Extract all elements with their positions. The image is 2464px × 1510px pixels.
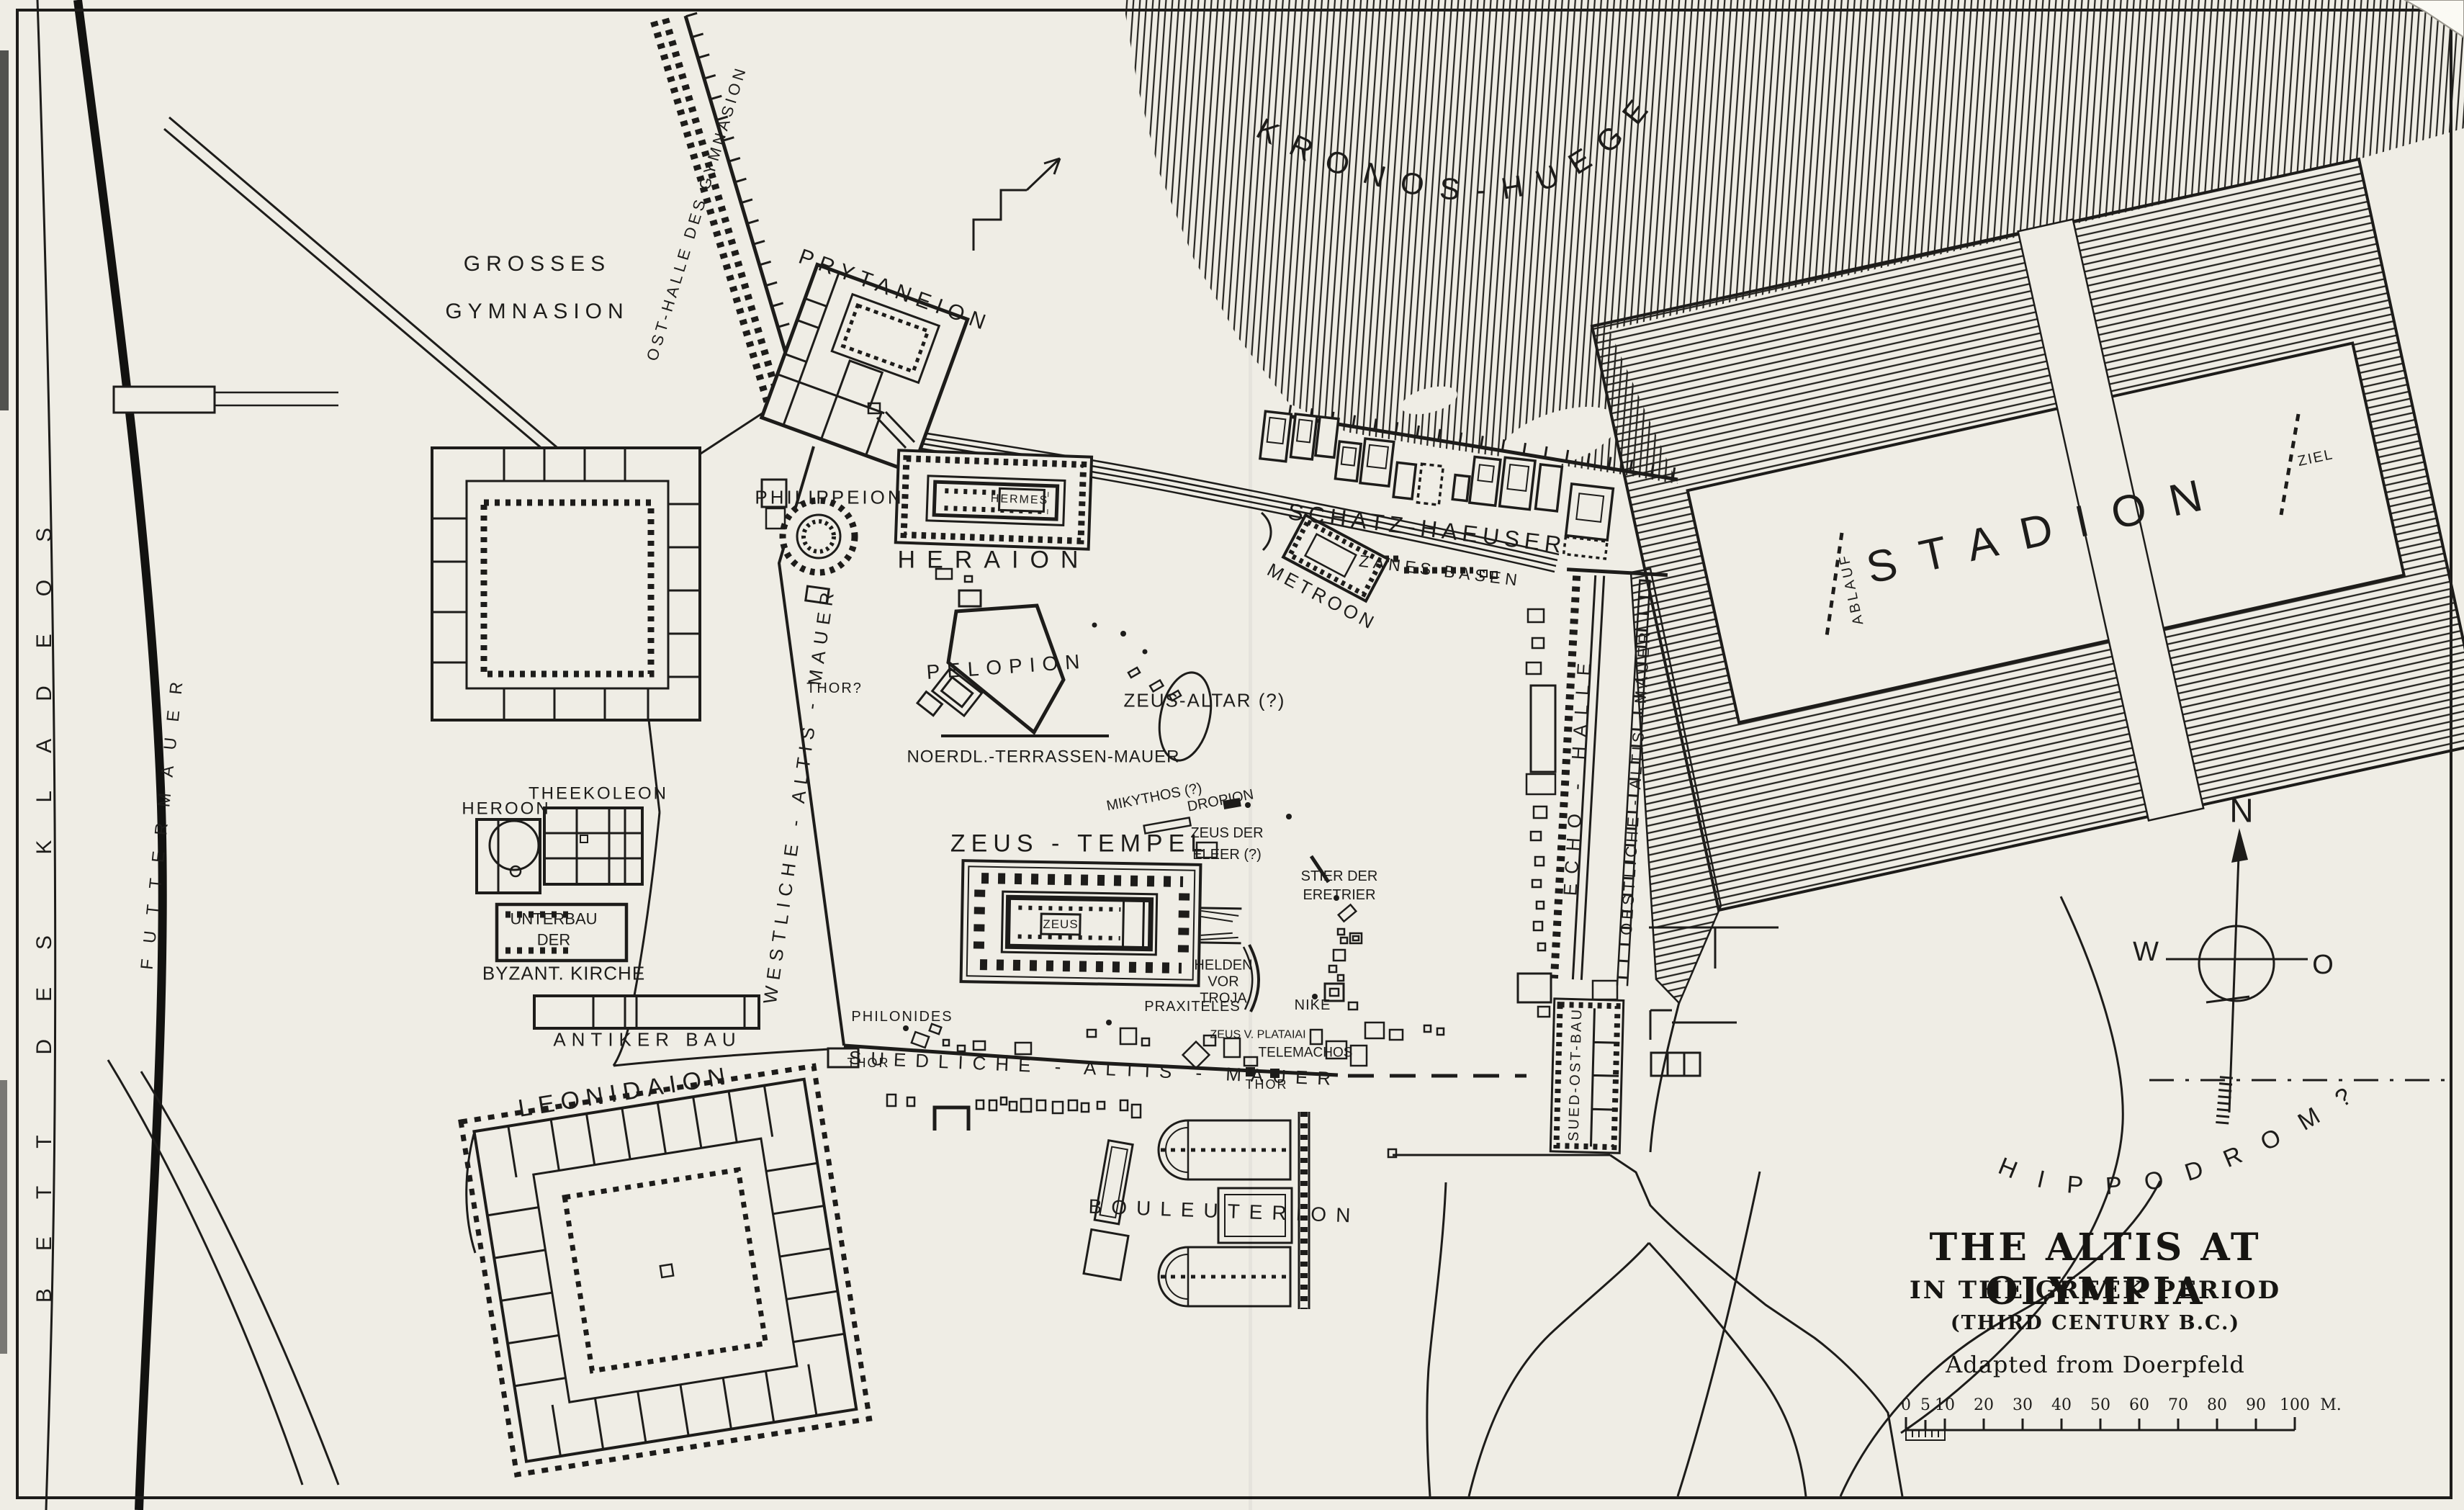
label-zeus-statue: ZEUS (1043, 917, 1078, 932)
scale-tick-0: 0 (1901, 1396, 1911, 1415)
label-heraion: HERAION (898, 546, 1090, 575)
scale-tick-40: 40 (2051, 1396, 2072, 1415)
scale-tick-10: 10 (1935, 1396, 1955, 1415)
label-telemachos: TELEMACHOS (1259, 1046, 1353, 1062)
scale-tick-100: 100 (2280, 1396, 2310, 1415)
scale-tick-20: 20 (1974, 1396, 1994, 1415)
label-grosses-gymnasion: GROSSES GYMNASION (445, 241, 629, 336)
scale-tick-5: 5 (1920, 1396, 1930, 1415)
map-subtitle-2: (THIRD CENTURY B.C.) (1872, 1312, 2319, 1334)
label-compass-o: O (2312, 949, 2334, 982)
label-zeus-v-plataiai: ZEUS V. PLATAIAI (1210, 1028, 1305, 1041)
label-bouleuterion: BOULEUTERION (1088, 1195, 1360, 1228)
label-zeus-der-eleer: ZEUS DER ELEER (?) (1190, 822, 1263, 866)
label-sued-ost-bau: SUED-OST-BAU (1565, 1007, 1586, 1142)
label-zeus-tempel: ZEUS - TEMPEL (950, 830, 1210, 859)
label-prytaneion: PRYTANEION (795, 244, 995, 338)
label-compass-n: N (2229, 791, 2253, 830)
map-credit: Adapted from Doerpfeld (1872, 1351, 2319, 1378)
scale-tick-60: 60 (2129, 1396, 2149, 1415)
olympia-altis-map: K R O N O S - H U E G E L H I P P O D R … (0, 0, 2464, 1510)
scale-unit: M. (2320, 1396, 2342, 1415)
scale-tick-70: 70 (2168, 1396, 2188, 1415)
label-antiker-bau: ANTIKER BAU (553, 1028, 741, 1051)
label-ziel: ZIEL (2296, 446, 2335, 470)
label-thor-west: THOR? (806, 680, 863, 697)
label-futtermauer: FUTTERMAUER (138, 665, 190, 971)
label-noerdl-terrassen-mauer: NOERDL.-TERRASSEN-MAUER (907, 747, 1179, 768)
label-hermes: HERMES (990, 492, 1048, 508)
label-byzant-kirche: BYZANT. KIRCHE (482, 962, 645, 984)
scale-tick-80: 80 (2207, 1396, 2227, 1415)
label-ablauf: ABLAUF (1835, 552, 1868, 627)
label-pelopion: PELOPION (926, 649, 1088, 684)
map-subtitle: IN THE GREEK PERIOD (1872, 1276, 2319, 1305)
label-westliche-altis-mauer: WESTLICHE - ALTIS - MAUER (759, 585, 840, 1005)
label-theekoleon: THEEKOLEON (529, 784, 668, 805)
label-oestliche-altis-mauer: OESTLICHE - ALTIS - MAUER (1617, 628, 1655, 935)
label-philonides: PHILONIDES (851, 1008, 953, 1025)
label-praxiteles: PRAXITELES (1144, 998, 1240, 1015)
scale-tick-30: 30 (2013, 1396, 2033, 1415)
label-ost-halle-des-gymnasion: OST-HALLE DES GYMNASION (643, 63, 751, 364)
scale-tick-90: 90 (2246, 1396, 2266, 1415)
label-zeus-altar: ZEUS-ALTAR (?) (1124, 689, 1286, 711)
label-bett-des-kladeos: BETT DES KLADEOS (32, 490, 58, 1303)
label-stier-der-eretrier: STIER DER ERETRIER (1301, 867, 1378, 904)
label-schatz-haeuser: SCHATZ-HAEUSER (1287, 498, 1568, 559)
label-unterbau-der: UNTERBAU DER (510, 909, 597, 950)
label-philippeion: PHILIPPEION (755, 486, 904, 508)
label-echo-halle: ECHO - HALLE (1559, 653, 1596, 896)
label-leonidaion: LEONIDAION (516, 1061, 734, 1123)
label-stadion: STADION (1861, 464, 2231, 596)
label-thor-southwest: THOR (847, 1056, 890, 1071)
label-nike: NIKE (1295, 997, 1331, 1014)
scale-tick-50: 50 (2090, 1396, 2110, 1415)
label-compass-w: W (2133, 936, 2159, 969)
label-zanes-basen: ZANES BASEN (1358, 551, 1523, 590)
